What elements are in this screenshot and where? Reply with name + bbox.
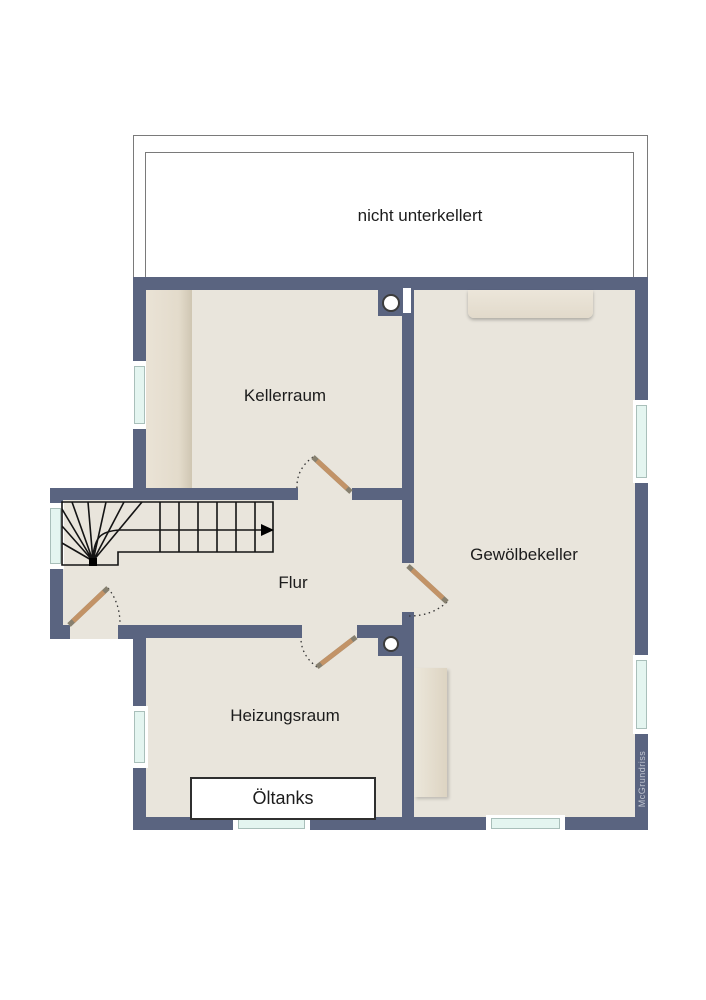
oil-tanks-label: Öltanks [252, 788, 313, 809]
fixture-gewoelbekeller-shelf-top [468, 290, 593, 318]
fixture-gewoelbekeller-shelf-left [414, 668, 447, 797]
wall-extension-bottom-left [50, 625, 70, 639]
window-gewoelbekeller-right-lower [633, 655, 650, 734]
window-heizungsraum-left [131, 706, 148, 768]
chimney-flue-icon [383, 636, 399, 652]
wall-kellerraum-flur-left [146, 488, 298, 500]
watermark-text: McGrundriss [637, 751, 647, 808]
window-gewoelbekeller-right-upper [633, 400, 650, 483]
window-glass [134, 711, 145, 763]
window-glass [636, 660, 647, 729]
window-flur-left [47, 503, 64, 569]
room-label-gewoelbekeller: Gewölbekeller [470, 545, 578, 565]
chimney-vent-slot [403, 288, 411, 313]
room-label-kellerraum: Kellerraum [244, 386, 326, 406]
chimney-flue-icon [382, 294, 400, 312]
wall-extension-top [50, 488, 146, 500]
area-label-not-basement: nicht unterkellert [358, 206, 483, 226]
wall-right [635, 277, 648, 830]
oil-tanks-box: Öltanks [190, 777, 376, 820]
window-glass [636, 405, 647, 478]
window-glass [134, 366, 145, 424]
window-glass [491, 818, 560, 829]
floor-entry-extension [63, 500, 146, 625]
doorway-threshold-exterior [70, 625, 118, 639]
fixture-kellerraum-shelf [146, 290, 192, 488]
wall-flur-heizung-left [146, 625, 302, 638]
window-glass [50, 508, 61, 564]
room-label-heizungsraum: Heizungsraum [230, 706, 340, 726]
wall-center-vertical-upper [402, 290, 414, 563]
window-gewoelbekeller-bottom [486, 815, 565, 832]
room-label-flur: Flur [278, 573, 307, 593]
floorplan-canvas: Öltanks [0, 0, 706, 1000]
